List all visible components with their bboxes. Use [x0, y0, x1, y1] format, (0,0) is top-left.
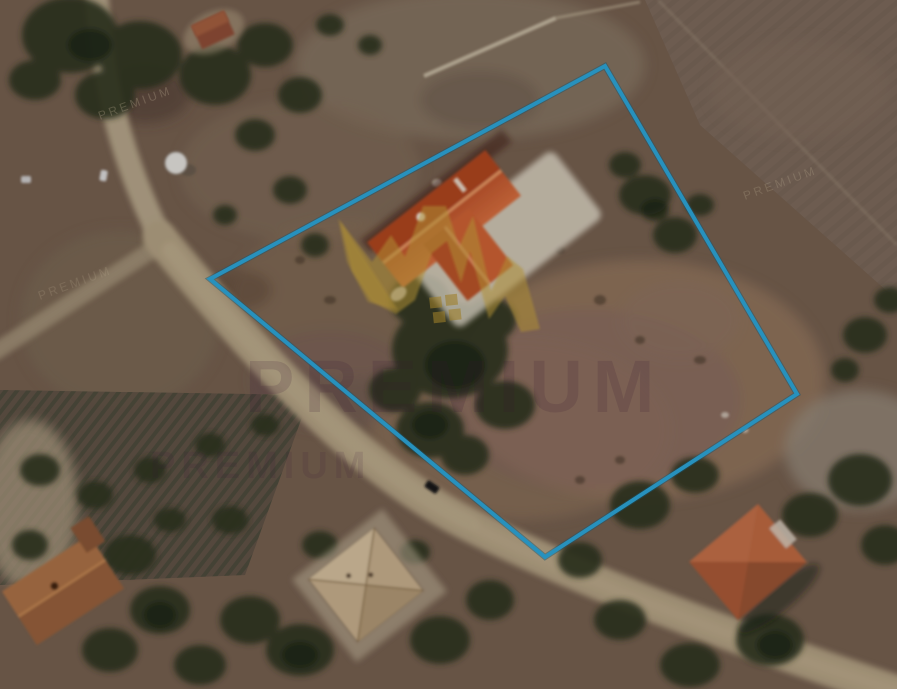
satellite-map-view[interactable]: PREMIUM PREMIUM PREMIUM PREMIUM PREMIUM [0, 0, 897, 689]
satellite-map-canvas: PREMIUM PREMIUM PREMIUM PREMIUM PREMIUM [0, 0, 897, 689]
photo-tone-overlay [0, 0, 897, 689]
